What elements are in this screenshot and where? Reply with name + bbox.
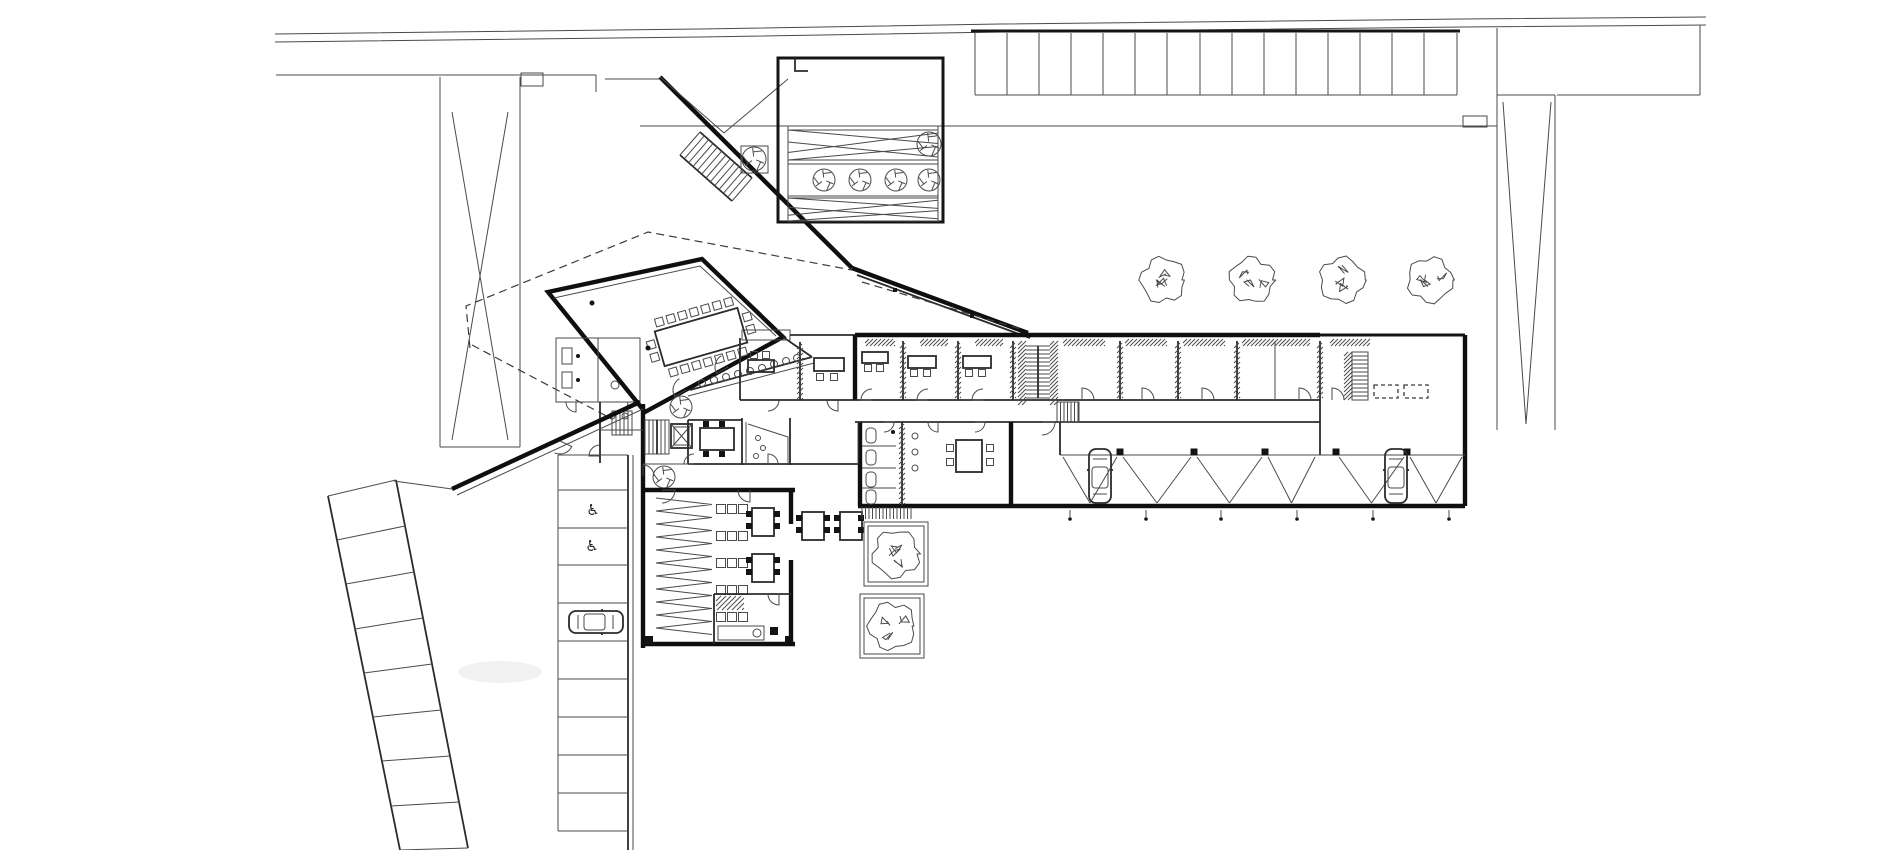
chair	[746, 557, 752, 563]
pl	[1503, 102, 1551, 424]
window-pier	[1295, 339, 1302, 346]
floor-plan-page: ♿♿	[0, 0, 1892, 850]
door-swing	[972, 389, 983, 400]
outdoor-stair	[693, 144, 713, 167]
meeting-room	[548, 259, 783, 412]
tree-icon	[867, 602, 914, 650]
stacked-chairs	[728, 613, 737, 622]
dh	[1050, 373, 1058, 381]
office-wing	[855, 335, 1465, 506]
garage	[1042, 422, 1465, 503]
line	[355, 618, 423, 629]
stove	[770, 627, 778, 635]
sink	[753, 629, 761, 637]
dh	[1018, 377, 1026, 385]
dot	[1447, 517, 1451, 521]
chair	[746, 569, 752, 575]
stacked-chairs	[728, 532, 737, 541]
chairs	[689, 307, 699, 317]
window-pier	[865, 339, 869, 343]
window-pier	[1208, 339, 1215, 346]
door-swing	[827, 400, 838, 411]
door-swing	[768, 594, 779, 605]
tree-icon	[899, 616, 909, 624]
chair	[987, 459, 994, 466]
stacked-chairs	[717, 505, 726, 514]
window-pier	[929, 339, 936, 346]
outdoor-stair	[706, 155, 726, 178]
tree-icon	[1338, 265, 1348, 274]
window-pier	[937, 339, 944, 346]
hall	[643, 490, 795, 644]
dh	[1050, 369, 1058, 377]
door-swing	[1202, 388, 1214, 400]
tree-icon	[1244, 280, 1254, 287]
desk	[814, 358, 844, 371]
vent-fan-icon	[919, 177, 924, 184]
roof-vee	[660, 77, 788, 133]
dh	[1050, 377, 1058, 385]
table	[700, 428, 734, 450]
window-pier	[1196, 339, 1203, 346]
vent-fan-icon	[850, 177, 855, 184]
c	[912, 465, 918, 471]
outdoor-stair	[723, 170, 743, 193]
dh	[1050, 365, 1058, 373]
outdoor-stair	[702, 151, 722, 174]
sq	[970, 314, 974, 318]
entry-facade	[452, 402, 640, 489]
dh	[1018, 365, 1026, 373]
dh	[1239, 397, 1240, 398]
spiral-stair	[654, 474, 659, 481]
dh	[1050, 341, 1058, 349]
window-pier	[1363, 339, 1370, 346]
window-pier	[1216, 339, 1223, 346]
table	[752, 508, 774, 536]
spiral-stair	[671, 404, 676, 411]
garage-door-mark	[1292, 457, 1316, 503]
window-pier	[1125, 339, 1129, 343]
sink	[611, 381, 619, 389]
wc-fixture	[866, 490, 876, 504]
garage-door-mark	[1157, 457, 1191, 503]
chairs	[654, 317, 664, 327]
dh	[1344, 372, 1352, 380]
outdoor-stair	[719, 167, 739, 190]
door-swing	[1142, 388, 1154, 400]
road-edge-south	[275, 25, 1706, 42]
window-pier	[1150, 339, 1157, 346]
plant-block	[741, 58, 943, 222]
desk	[908, 356, 936, 368]
chair	[831, 374, 838, 381]
chair	[774, 569, 780, 575]
window-pier	[1096, 339, 1103, 346]
window-pier	[1146, 339, 1153, 346]
garage-door-mark	[1230, 457, 1263, 503]
chairs	[746, 324, 756, 334]
tree-icon	[1320, 256, 1367, 304]
dh	[1018, 369, 1026, 377]
dh	[1018, 373, 1026, 381]
tree-icon	[1259, 279, 1269, 287]
parking-band	[328, 402, 643, 850]
tree-icon	[1160, 270, 1170, 278]
door-swing	[589, 445, 600, 456]
terrace	[796, 507, 928, 658]
window-pier	[1331, 339, 1338, 346]
chairs	[680, 364, 690, 374]
wc-fixture	[562, 372, 572, 388]
car-icon	[1092, 467, 1108, 488]
louver-band	[788, 147, 938, 161]
wing-toilets	[862, 422, 1011, 506]
dh	[716, 596, 721, 601]
window-pier	[1080, 339, 1087, 346]
door-swing	[1299, 388, 1311, 400]
window-pier	[941, 339, 948, 346]
window-pier	[1359, 339, 1366, 346]
chairs	[666, 314, 676, 324]
dh	[1050, 353, 1058, 361]
window-pier	[1204, 339, 1211, 346]
outdoor-stair	[728, 174, 748, 197]
dot	[1068, 517, 1072, 521]
wc-fixture	[866, 450, 876, 465]
dh	[732, 598, 744, 610]
window-pier	[1259, 339, 1266, 346]
door-swing	[768, 400, 779, 411]
dh	[1344, 388, 1352, 396]
wc-fixture	[866, 472, 876, 487]
louver-band	[788, 130, 938, 144]
dot	[1219, 517, 1223, 521]
line	[364, 664, 432, 673]
window-pier	[1247, 339, 1254, 346]
window-pier	[866, 339, 873, 346]
accessible-parking-icon: ♿	[586, 501, 599, 519]
tree-icon	[1420, 280, 1430, 287]
dh	[1050, 381, 1058, 389]
pl	[795, 58, 808, 71]
car-icon	[1087, 449, 1113, 503]
door-post	[1262, 449, 1269, 456]
window-pier	[1134, 339, 1141, 346]
stacked-chairs	[728, 505, 737, 514]
window-pier	[1158, 339, 1165, 346]
tree-icon	[881, 617, 890, 625]
line	[328, 480, 396, 496]
window-pier	[1339, 339, 1346, 346]
desk	[963, 356, 991, 368]
dh	[1344, 376, 1352, 384]
window-pier	[1367, 343, 1370, 346]
car-icon	[569, 609, 623, 635]
pl	[394, 481, 452, 489]
chair	[719, 421, 725, 427]
window-pier	[894, 345, 895, 346]
dh	[1344, 356, 1352, 364]
c	[754, 454, 759, 459]
garage-door-mark	[1123, 457, 1157, 503]
plant-room	[778, 58, 943, 222]
chair	[947, 445, 954, 452]
chair	[858, 527, 864, 533]
chair	[834, 515, 840, 521]
dh	[1018, 385, 1026, 393]
chair	[947, 459, 954, 466]
window-pier	[984, 339, 991, 346]
vent-fan-icon	[823, 173, 831, 174]
wc-fixture	[562, 348, 572, 364]
window-pier	[996, 339, 1003, 346]
window-pier	[1088, 339, 1095, 346]
window-pier	[1184, 339, 1191, 346]
window-pier	[1126, 339, 1133, 346]
outdoor-stair	[697, 147, 717, 170]
door-swing	[975, 422, 985, 432]
chair	[817, 374, 824, 381]
chair	[834, 527, 840, 533]
window-pier	[1275, 339, 1282, 346]
window-pier	[1138, 339, 1145, 346]
window-pier	[945, 343, 948, 346]
garage-door-mark	[1436, 457, 1462, 503]
window-pier	[1251, 339, 1258, 346]
vent-fan-icon	[814, 177, 819, 184]
window-pier	[1063, 339, 1067, 343]
louver-band	[788, 198, 938, 208]
stacked-chairs	[728, 559, 737, 568]
chair	[746, 511, 752, 517]
chair	[703, 451, 709, 457]
garage-door-mark	[1063, 457, 1090, 503]
dh	[1344, 352, 1348, 356]
door-swing	[1082, 388, 1094, 400]
window-pier	[1092, 339, 1099, 346]
car-icon	[1388, 467, 1404, 488]
central-offices	[740, 330, 855, 411]
window-pier	[870, 339, 877, 346]
chairs	[712, 300, 722, 310]
tree-icon	[872, 532, 920, 579]
window-pier	[1072, 339, 1079, 346]
outdoor-stair	[689, 140, 709, 163]
dh	[1180, 397, 1181, 398]
chair	[774, 523, 780, 529]
rect	[868, 526, 924, 582]
break-table	[956, 440, 982, 472]
tree-icon	[883, 632, 893, 640]
outdoor-stair	[715, 163, 735, 186]
equipment-dashed	[1374, 385, 1398, 398]
door-swing	[861, 389, 872, 400]
door-swing	[928, 422, 938, 432]
dh	[1050, 389, 1058, 397]
stacked-chairs	[739, 532, 748, 541]
chair	[924, 370, 931, 377]
dh	[716, 596, 726, 606]
chair	[987, 445, 994, 452]
garage-door-mark	[1339, 457, 1372, 503]
window-pier	[1347, 339, 1354, 346]
dh	[1018, 361, 1026, 369]
garage-door-mark	[1197, 457, 1230, 503]
column	[646, 346, 651, 351]
dh	[1018, 389, 1026, 397]
dh	[1018, 341, 1026, 349]
chairs	[703, 357, 713, 367]
chair	[979, 370, 986, 377]
chair	[824, 515, 830, 521]
meeting-room-walls	[548, 259, 783, 412]
window-pier	[1192, 339, 1199, 346]
annex-rooms	[684, 418, 858, 465]
roads	[275, 17, 1706, 95]
c	[756, 436, 761, 441]
vent-fan-icon	[753, 151, 762, 152]
lawn-trees	[1139, 256, 1455, 304]
window-pier	[886, 339, 893, 346]
chairs	[668, 367, 678, 377]
window-pier	[1335, 339, 1342, 346]
window-pier	[1355, 339, 1362, 346]
pl	[862, 282, 1024, 330]
chair	[774, 511, 780, 517]
window-pier	[1307, 343, 1310, 346]
chairs	[692, 360, 702, 370]
c	[912, 449, 918, 455]
dh	[1122, 397, 1123, 398]
dh	[742, 608, 744, 610]
chairs	[678, 310, 688, 320]
window-pier	[874, 339, 881, 346]
window-pier	[975, 339, 979, 343]
chair	[746, 523, 752, 529]
chair	[966, 370, 973, 377]
dh	[1344, 352, 1352, 360]
car-icon	[1383, 449, 1409, 503]
window-pier	[992, 339, 999, 346]
window-pier	[1303, 339, 1310, 346]
vent-fan-icon	[895, 173, 903, 174]
door-post	[1191, 449, 1198, 456]
chairs	[726, 350, 736, 360]
stacked-chairs	[717, 532, 726, 541]
door-swing	[1332, 388, 1344, 400]
window-pier	[976, 339, 983, 346]
window-pier	[1154, 339, 1161, 346]
sq	[645, 636, 653, 644]
artifact	[458, 661, 542, 683]
dh	[1344, 364, 1352, 372]
window-pier	[920, 339, 924, 343]
dh	[1322, 397, 1323, 398]
rect	[1463, 116, 1487, 127]
dh	[1050, 357, 1058, 365]
outdoor-stair	[710, 159, 730, 182]
outdoor-stair	[732, 178, 752, 201]
dot	[576, 378, 580, 382]
dh	[1344, 392, 1352, 400]
chair	[824, 527, 830, 533]
dh	[1050, 361, 1058, 369]
vent-fan-icon	[859, 173, 867, 174]
dot	[1371, 517, 1375, 521]
outdoor-stair	[680, 132, 700, 155]
chair	[796, 527, 802, 533]
dh	[1018, 349, 1026, 357]
conference-table	[655, 308, 748, 366]
window-pier	[1064, 339, 1071, 346]
window-pier	[1183, 339, 1187, 343]
window-pier	[1283, 339, 1290, 346]
window-pier	[1200, 339, 1207, 346]
tree-icon	[1239, 270, 1249, 278]
window-pier	[1068, 339, 1075, 346]
vent-fan-icon	[928, 173, 936, 174]
line	[337, 526, 405, 540]
window-pier	[1255, 339, 1262, 346]
dh	[905, 397, 906, 398]
sq	[893, 288, 897, 292]
tree-icon	[1229, 256, 1276, 301]
equipment-dashed	[1404, 385, 1428, 398]
dot	[576, 354, 580, 358]
line	[457, 409, 643, 495]
dh	[1018, 345, 1026, 353]
window-pier	[1291, 339, 1298, 346]
chair	[719, 451, 725, 457]
dh	[1022, 401, 1026, 405]
chairs	[650, 352, 660, 362]
dh	[1050, 345, 1058, 353]
dot	[891, 430, 895, 434]
dh	[1050, 341, 1054, 345]
chair	[911, 370, 918, 377]
parking-column: ♿♿	[558, 455, 633, 850]
window-pier	[1142, 339, 1149, 346]
window-pier	[1330, 339, 1334, 343]
dh	[1018, 357, 1026, 365]
tree-icon	[1437, 273, 1447, 281]
vent-fan-icon	[886, 177, 891, 184]
spiral-stair	[680, 400, 688, 401]
chair	[774, 557, 780, 563]
apron	[1068, 510, 1451, 521]
window-pier	[921, 339, 928, 346]
embankment-left	[440, 77, 520, 447]
folding-partition	[656, 498, 712, 635]
pl	[472, 345, 612, 419]
garage-door-mark	[1410, 457, 1436, 503]
door-swing	[566, 402, 576, 412]
dot	[1295, 517, 1299, 521]
dh	[960, 397, 961, 398]
dh	[1050, 349, 1058, 357]
door-post	[1117, 449, 1124, 456]
dh	[1018, 397, 1026, 405]
window-pier	[1076, 339, 1083, 346]
table	[752, 554, 774, 582]
chair	[865, 365, 872, 372]
dh	[1344, 380, 1352, 388]
window-pier	[882, 339, 889, 346]
window-pier	[1130, 339, 1137, 346]
window-pier	[1212, 339, 1219, 346]
tree-icon	[1408, 257, 1455, 304]
